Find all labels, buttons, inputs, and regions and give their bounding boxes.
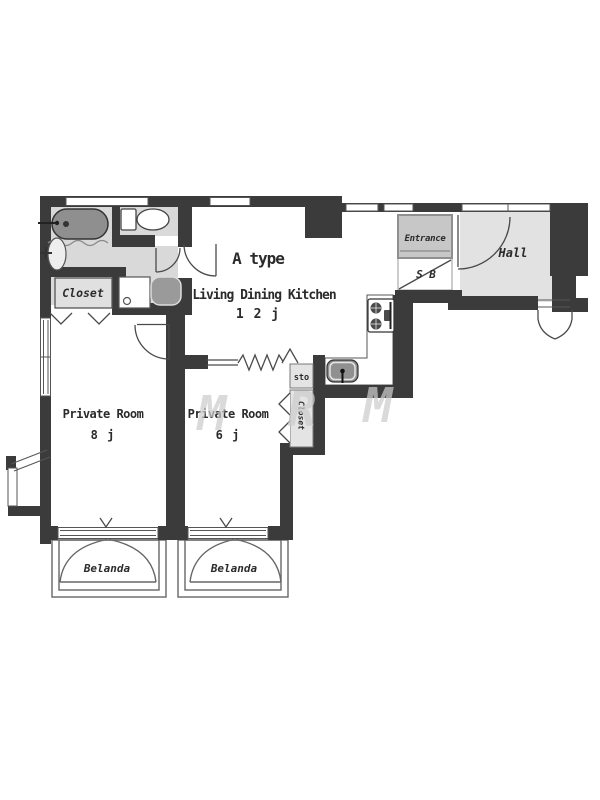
wall-bottom-pier-left xyxy=(40,526,58,540)
ldk-size-label: 1 2 j xyxy=(236,307,280,322)
wall-washroom-right-upper xyxy=(178,196,192,247)
wall-step-block xyxy=(305,196,342,238)
watermark-letter-1: M xyxy=(196,386,229,442)
wall-kitchen-right xyxy=(393,295,413,398)
toilet-icon xyxy=(121,209,169,230)
floor-plan-page: A type Living Dining Kitchen 1 2 j Priva… xyxy=(0,0,600,800)
balcony2-label: Belanda xyxy=(210,562,258,575)
hall-label: Hall xyxy=(498,246,528,260)
shoe-box-label: S B xyxy=(416,268,436,281)
toilet-door-gap xyxy=(155,236,178,246)
wall-bottom-pier-right xyxy=(268,526,293,540)
stove-icon xyxy=(368,299,394,332)
wall-room2-right xyxy=(280,443,293,540)
washing-machine-pan-icon xyxy=(119,277,150,308)
ldk-label: Living Dining Kitchen xyxy=(192,288,336,303)
room1-size-label: 8 j xyxy=(91,428,116,442)
wall-door-stub xyxy=(570,298,588,312)
kitchen-sink-icon xyxy=(327,360,358,383)
closet-label: Closet xyxy=(62,286,104,300)
vanity-icon xyxy=(151,277,181,305)
floor-plan: A type Living Dining Kitchen 1 2 j Priva… xyxy=(0,0,600,800)
window-hall-top xyxy=(462,204,550,211)
window-ldk-top xyxy=(210,198,250,206)
wall-room2-top xyxy=(166,355,208,369)
room1-label: Private Room xyxy=(63,407,144,421)
window-bay xyxy=(8,468,17,506)
window-entrance-2 xyxy=(384,204,413,211)
window-room2-bottom xyxy=(188,528,268,539)
unit-type-label: A type xyxy=(232,249,284,268)
wall-corner-right xyxy=(550,203,588,276)
wall-bottom-pier-middle xyxy=(158,526,188,540)
window-top-left xyxy=(66,198,148,206)
wall-bay-bottom xyxy=(8,506,48,516)
window-entrance-1 xyxy=(346,204,378,211)
entrance-label: Entrance xyxy=(405,234,447,244)
watermark-letter-3: M xyxy=(362,378,395,434)
watermark-letter-2: R xyxy=(288,382,317,438)
wall-toilet-bottom xyxy=(112,235,155,247)
watermark: M R M xyxy=(196,378,395,442)
balcony1-label: Belanda xyxy=(83,562,131,575)
window-room1-bottom xyxy=(58,528,158,539)
